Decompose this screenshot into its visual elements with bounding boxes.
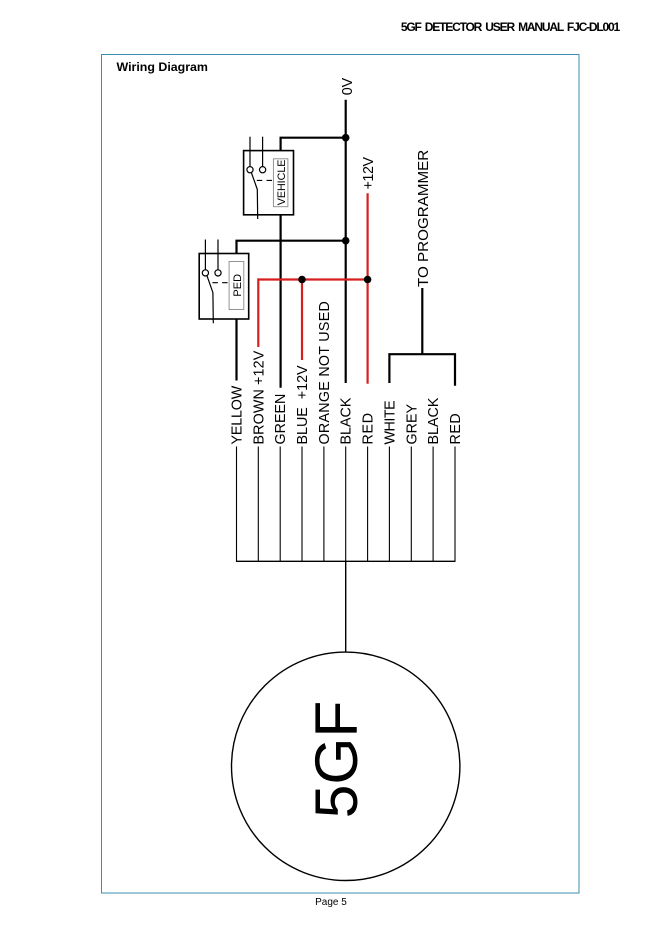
svg-text:5GF: 5GF [302, 701, 370, 819]
svg-text:GREY: GREY [404, 404, 420, 445]
svg-text:Page 5: Page 5 [315, 897, 347, 908]
svg-text:TO PROGRAMMER: TO PROGRAMMER [415, 150, 432, 287]
svg-text:BLACK: BLACK [426, 397, 442, 444]
svg-text:GREEN: GREEN [273, 394, 289, 445]
svg-text:YELLOW: YELLOW [230, 385, 246, 444]
svg-text:BLUE +12V: BLUE +12V [295, 365, 311, 445]
svg-text:0V: 0V [340, 77, 356, 95]
svg-text:ORANGE NOT USED: ORANGE NOT USED [317, 301, 333, 445]
svg-text:VEHICLE: VEHICLE [276, 160, 288, 206]
svg-text:WHITE: WHITE [382, 401, 398, 445]
svg-text:RED: RED [361, 412, 377, 444]
svg-text:+12V: +12V [361, 157, 377, 190]
svg-text:BROWN +12V: BROWN +12V [251, 350, 267, 444]
svg-text:BLACK: BLACK [339, 397, 355, 444]
svg-text:PED: PED [232, 274, 244, 297]
svg-text:Wiring Diagram: Wiring Diagram [117, 60, 208, 74]
svg-text:RED: RED [448, 413, 464, 445]
svg-text:5GF DETECTOR USER MANUAL FJC-D: 5GF DETECTOR USER MANUAL FJC-DL001 [401, 20, 621, 34]
